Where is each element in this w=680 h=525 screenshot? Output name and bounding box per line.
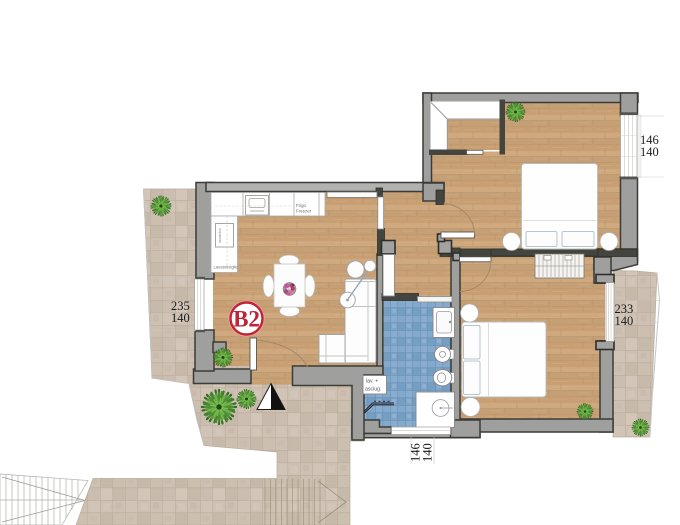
svg-text:lavatrice: lavatrice [217,227,222,243]
svg-text:Lavastoviglie: Lavastoviglie [214,265,239,270]
svg-text:140: 140 [615,314,634,328]
svg-text:asciug.: asciug. [365,387,381,393]
svg-text:140: 140 [171,311,190,325]
svg-text:lav. +: lav. + [366,379,378,385]
svg-text:140: 140 [421,443,435,462]
svg-text:140: 140 [640,145,659,159]
svg-text:B2: B2 [233,307,260,332]
svg-text:Freezer: Freezer [296,208,312,213]
svg-text:Frigo: Frigo [296,203,307,208]
